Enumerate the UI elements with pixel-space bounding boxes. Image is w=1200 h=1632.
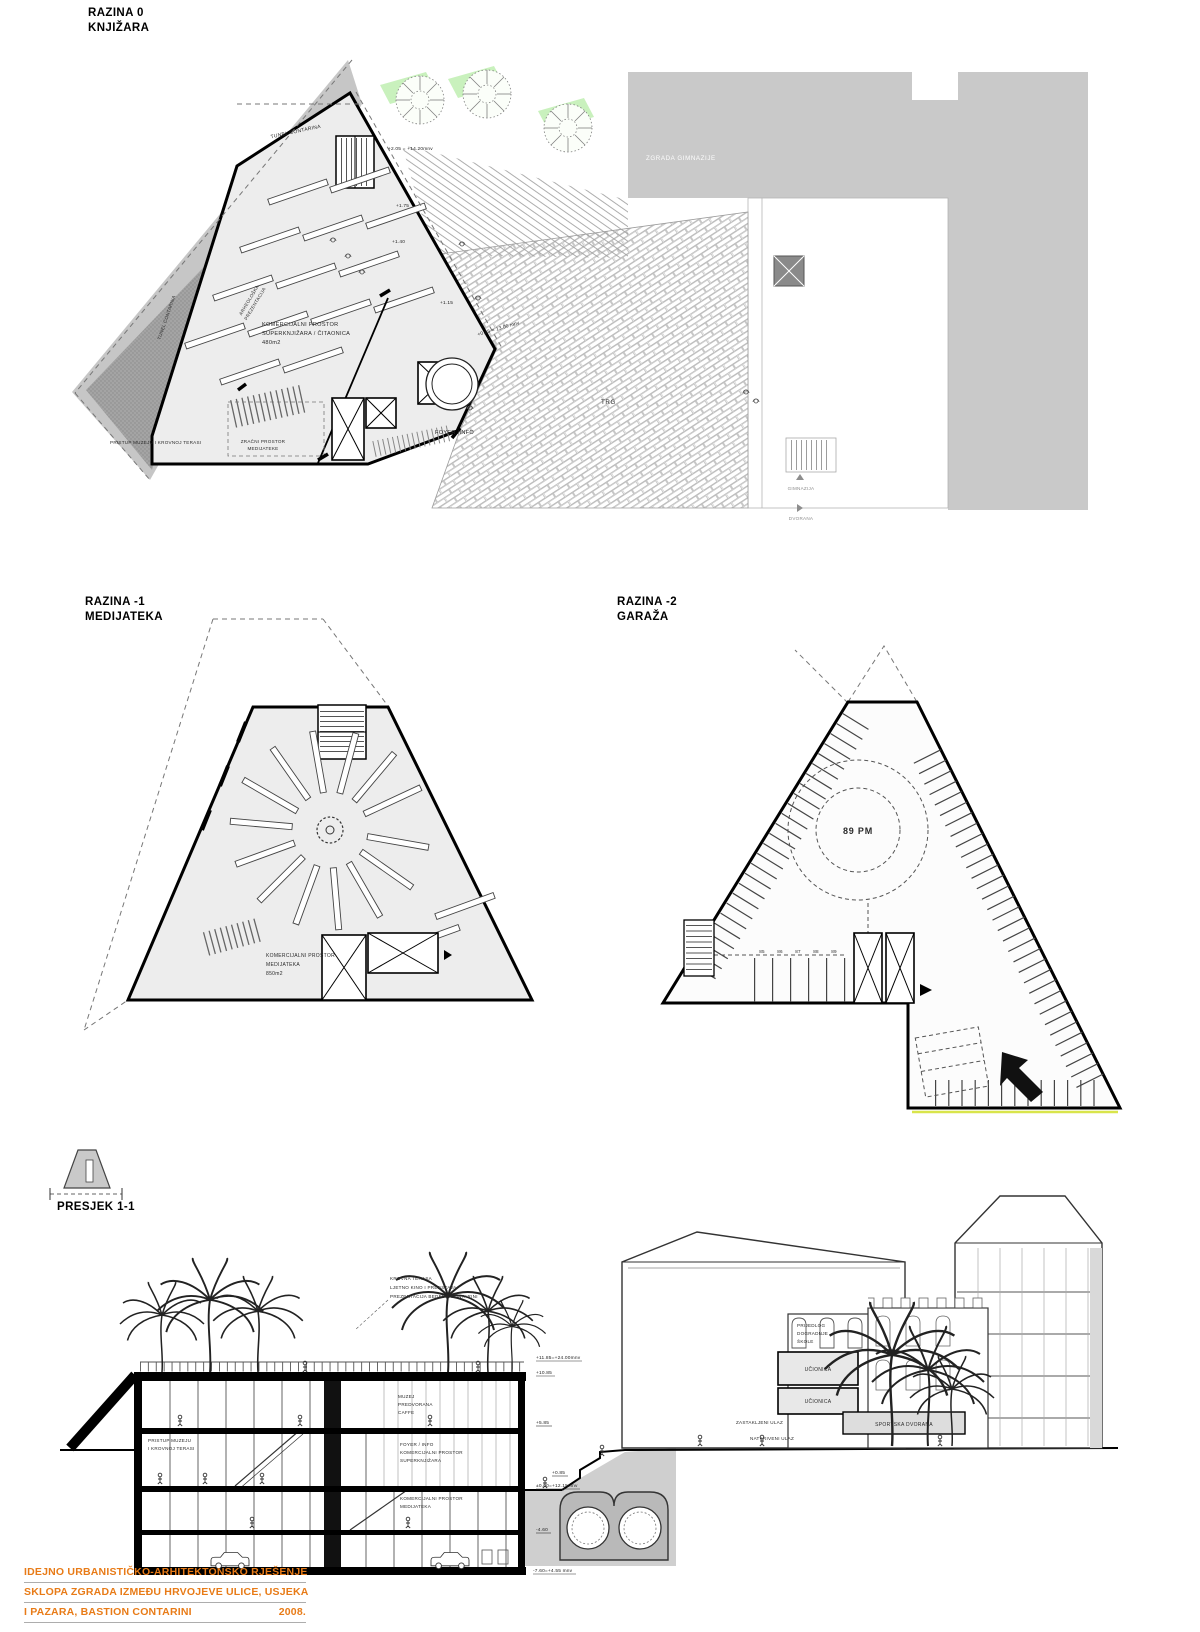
- level-mark: +1.75: [396, 203, 409, 209]
- label-medijateke: MEDIJATEKE: [247, 446, 278, 451]
- title-presjek-line: PRESJEK 1-1: [57, 1200, 135, 1215]
- title-razina-0-line1: RAZINA 0: [88, 6, 149, 21]
- label-skole: ŠKOLE: [797, 1338, 814, 1344]
- tunnel-section: [560, 1492, 668, 1560]
- label-prezentacija-bedema: PREZENTACIJA BEDEMA CONTARINI: [390, 1294, 478, 1299]
- label-ljetno-kino: LJETNO KINO I PREDSTAVA: [390, 1285, 457, 1290]
- site-boundary-dashed: [795, 646, 917, 703]
- info-desk: [426, 358, 478, 410]
- label-area-850: 850m2: [266, 971, 283, 977]
- title-razina-minus2: RAZINA -2 GARAŽA: [617, 595, 677, 625]
- label-sportska-dvorana: SPORTSKA DVORANA: [875, 1422, 933, 1428]
- stall-number: 89: [831, 949, 837, 954]
- drawing-sheet: TUNEL CONTARINA TUNEL CONTARINA ARHEOLOŠ…: [0, 0, 1200, 1632]
- title-razina-minus1-line1: RAZINA -1: [85, 595, 163, 610]
- label-foyer-info: FOYER /INFO: [435, 430, 474, 436]
- title-presjek: PRESJEK 1-1: [57, 1200, 135, 1215]
- garage-outline: [663, 702, 1120, 1108]
- label-prijedlog: PRIJEDLOG: [797, 1323, 825, 1328]
- plan-razina-0: TUNEL CONTARINA TUNEL CONTARINA ARHEOLOŠ…: [72, 60, 1088, 521]
- label-capacity: 89 PM: [843, 826, 873, 836]
- title-razina-minus1-line2: MEDIJATEKA: [85, 610, 163, 625]
- label-zastakljeni-ulaz: ZASTAKLJENI ULAZ: [736, 1420, 783, 1425]
- label-dvorana: DVORANA: [789, 516, 814, 521]
- project-title-block: IDEJNO URBANISTIČKO-ARHITEKTONSKO RJEŠEN…: [24, 1563, 306, 1623]
- stall-number: 88: [813, 949, 819, 954]
- label-caffe: CAFFE: [398, 1410, 414, 1415]
- title-razina-0: RAZINA 0 KNJIŽARA: [88, 6, 149, 36]
- plan-razina-minus1: KOMERCIJALNI PROSTOR MEDIJATEKA 850m2: [84, 619, 532, 1030]
- label-trg: TRG: [601, 399, 616, 406]
- label-zracni-prostor: ZRAČNI PROSTOR: [241, 438, 286, 444]
- school-buildings-section: [622, 1196, 1102, 1448]
- label-komercijalni-prostor: KOMERCIJALNI PROSTOR: [262, 322, 338, 328]
- project-title-line1: IDEJNO URBANISTIČKO-ARHITEKTONSKO RJEŠEN…: [24, 1563, 306, 1583]
- project-title-line3: I PAZARA, BASTION CONTARINI 2008.: [24, 1603, 306, 1623]
- tree-icon: [463, 70, 511, 118]
- label-medijateka: MEDIJATEKA: [266, 962, 300, 968]
- title-razina-minus1: RAZINA -1 MEDIJATEKA: [85, 595, 163, 625]
- label-ucionica-2: UČIONICA: [805, 1398, 832, 1405]
- project-title-line2: SKLOPA ZGRADA IZMEĐU HRVOJEVE ULICE, USJ…: [24, 1583, 306, 1603]
- stall-number: 87: [795, 949, 801, 954]
- plan-razina-minus2: 89 PM 85 86 87 88 89: [663, 646, 1120, 1112]
- section-key-icon: [50, 1150, 122, 1200]
- label-superknjizara: SUPERKNJIŽARA: [400, 1456, 442, 1463]
- level-roof: +11.85=+24.00mnv: [536, 1355, 581, 1361]
- level-mark: +1.15: [440, 300, 453, 306]
- level-mark: +1.40: [392, 239, 405, 245]
- project-title-line3-text: I PAZARA, BASTION CONTARINI: [24, 1603, 192, 1622]
- ramp-zone: [402, 145, 628, 258]
- title-razina-0-line2: KNJIŽARA: [88, 21, 149, 36]
- label-zgrada-gimnazije: ZGRADA GIMNAZIJE: [646, 155, 716, 162]
- label-foyer-info: FOYER / INFO: [400, 1442, 434, 1447]
- label-komercijalni-b1: KOMERCIJALNI PROSTOR: [400, 1496, 463, 1501]
- level-plaza: +0.85: [552, 1470, 565, 1476]
- tree-icon: [396, 76, 444, 124]
- level-b1: -4.60: [536, 1527, 548, 1533]
- section-presjek: KROVNA TERASA LJETNO KINO I PREDSTAVA PR…: [50, 1150, 1118, 1575]
- label-medijateka-b1: MEDIJATEKA: [400, 1504, 432, 1509]
- label-komercijalni-prostor: KOMERCIJALNI PROSTOR: [266, 953, 335, 959]
- stall-number: 86: [777, 949, 783, 954]
- level-mid: +5.85: [536, 1420, 549, 1426]
- label-predvorana: PREDVORANA: [398, 1402, 433, 1407]
- title-razina-minus2-line2: GARAŽA: [617, 610, 677, 625]
- label-pristup-muzeju-1: PRISTUP MUZEJU: [148, 1438, 191, 1443]
- level-b2: -7.60=+4.55 mnv: [533, 1568, 573, 1574]
- stall-number: 85: [759, 949, 765, 954]
- palm-trees: [120, 1252, 546, 1372]
- label-natkriveni-ulaz: NATKRIVENI ULAZ: [750, 1436, 794, 1441]
- architectural-drawings: TUNEL CONTARINA TUNEL CONTARINA ARHEOLOŠ…: [0, 0, 1200, 1632]
- label-krovna-terasa: KROVNA TERASA: [390, 1276, 433, 1281]
- label-area-480: 480m2: [262, 340, 281, 346]
- tree-icon: [544, 104, 592, 152]
- project-year: 2008.: [279, 1603, 306, 1622]
- label-muzej: MUZEJ: [398, 1394, 415, 1399]
- label-dogradnje: DOGRADNJE: [797, 1331, 828, 1336]
- label-pristup-muzeju: PRISTUP MUZEJU I KROVNOJ TERASI: [110, 440, 201, 445]
- level-roof2: +10.85: [536, 1370, 552, 1376]
- label-gimnazija: GIMNAZIJA: [788, 486, 815, 491]
- title-razina-minus2-line1: RAZINA -2: [617, 595, 677, 610]
- label-komercijalni: KOMERCIJALNI PROSTOR: [400, 1450, 463, 1455]
- building-razina0: [152, 93, 495, 464]
- label-superknjizara: SUPERKNJIŽARA / ČITAONICA: [262, 329, 350, 337]
- label-pristup-muzeju-2: I KROVNOJ TERASI: [148, 1446, 195, 1451]
- label-ucionica-1: UČIONICA: [805, 1366, 832, 1373]
- level-mark: +2.05 = +14.20mnv: [388, 146, 433, 152]
- level-zero: ±0.00=+12.15mnv: [536, 1483, 578, 1489]
